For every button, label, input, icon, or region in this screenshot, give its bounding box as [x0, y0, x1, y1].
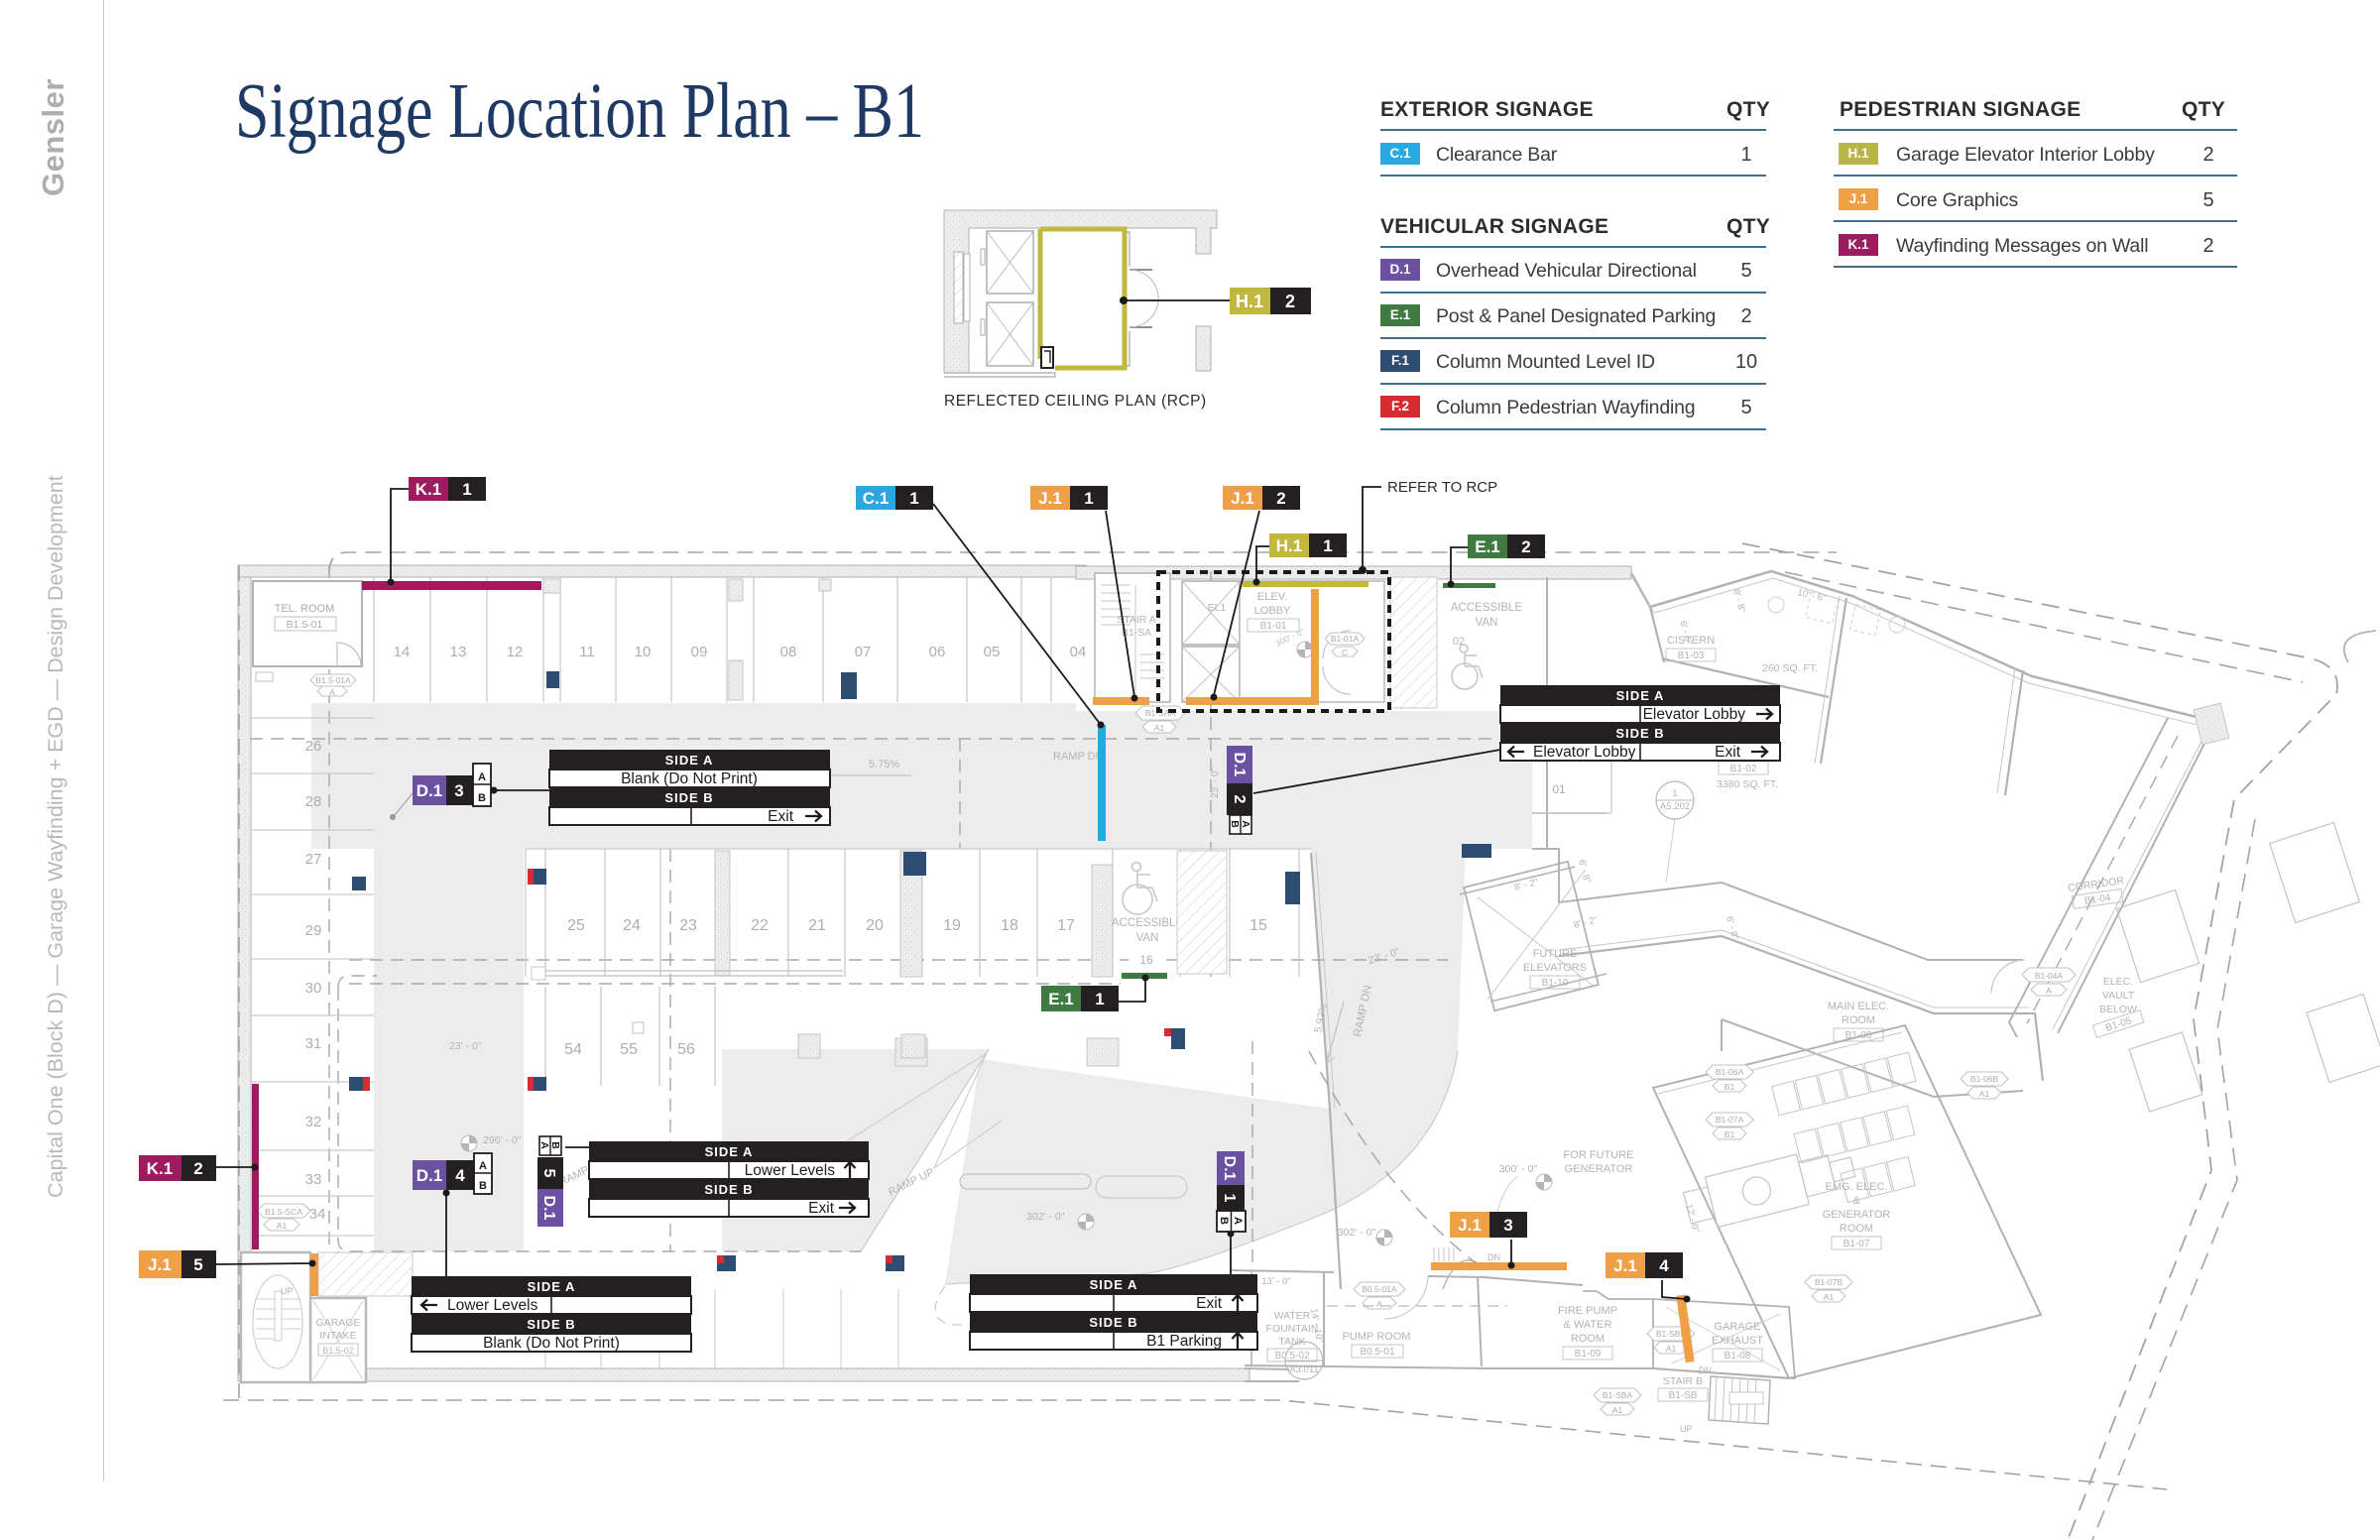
svg-text:A: A: [329, 687, 335, 697]
svg-text:RAMP DN: RAMP DN: [1053, 751, 1104, 763]
svg-text:INTAKE: INTAKE: [319, 1330, 356, 1342]
svg-text:4: 4: [1659, 1256, 1669, 1275]
svg-text:28: 28: [305, 793, 322, 810]
svg-text:B1.5-01: B1.5-01: [287, 619, 323, 631]
svg-text:20: 20: [866, 917, 884, 934]
svg-text:B1.5-01A: B1.5-01A: [315, 675, 351, 685]
svg-text:2: 2: [1285, 292, 1295, 311]
svg-text:A: A: [1232, 1217, 1244, 1225]
svg-text:B1-06A: B1-06A: [1716, 1067, 1744, 1077]
svg-text:LOBBY: LOBBY: [1254, 605, 1291, 617]
svg-text:1: 1: [1095, 990, 1104, 1008]
svg-text:B: B: [479, 1180, 487, 1192]
svg-text:K.1: K.1: [147, 1159, 173, 1178]
svg-text:B1-01: B1-01: [1260, 621, 1287, 632]
svg-text:REFER TO RCP: REFER TO RCP: [1387, 479, 1497, 496]
svg-text:23' - 0": 23' - 0": [1210, 768, 1221, 798]
svg-text:302' - 0": 302' - 0": [1026, 1211, 1065, 1223]
svg-text:26: 26: [305, 738, 322, 755]
svg-text:B1-04A: B1-04A: [2035, 971, 2064, 981]
svg-text:ACCESSIBLE: ACCESSIBLE: [1112, 917, 1184, 929]
svg-text:296' - 0": 296' - 0": [483, 1134, 522, 1146]
svg-text:CORRIDOR: CORRIDOR: [2067, 875, 2125, 894]
svg-text:FIRE PUMP: FIRE PUMP: [1558, 1305, 1617, 1317]
svg-text:B0.5-01: B0.5-01: [1360, 1347, 1394, 1358]
svg-text:13' - 0": 13' - 0": [1261, 1276, 1290, 1287]
svg-text:Blank (Do Not Print): Blank (Do Not Print): [621, 770, 758, 787]
svg-text:J.1: J.1: [1613, 1256, 1637, 1275]
svg-text:B1-06B: B1-06B: [1970, 1074, 1999, 1084]
svg-text:EL1: EL1: [1208, 602, 1227, 614]
svg-text:B1-04: B1-04: [2083, 892, 2111, 907]
svg-text:11: 11: [579, 644, 595, 660]
svg-text:A5.202: A5.202: [1660, 801, 1690, 812]
svg-text:SIDE A: SIDE A: [1616, 688, 1665, 703]
svg-text:6' - 8": 6' - 8": [1576, 859, 1593, 885]
svg-text:05: 05: [984, 644, 1001, 660]
svg-text:29: 29: [305, 922, 322, 939]
svg-text:GENERATOR: GENERATOR: [1823, 1209, 1891, 1221]
svg-text:13: 13: [450, 644, 467, 660]
svg-text:Exit: Exit: [1196, 1295, 1223, 1312]
svg-text:E.1: E.1: [1048, 990, 1074, 1008]
svg-text:GENERATOR: GENERATOR: [1565, 1163, 1633, 1175]
svg-text:B1-03: B1-03: [1678, 651, 1705, 661]
svg-text:A1: A1: [1824, 1292, 1835, 1302]
svg-text:B: B: [1229, 820, 1241, 828]
svg-text:B1-SBA: B1-SBA: [1603, 1390, 1633, 1400]
svg-text:ELEC.: ELEC.: [2103, 976, 2133, 988]
svg-text:SIDE B: SIDE B: [1615, 726, 1664, 741]
svg-text:15: 15: [1249, 917, 1267, 934]
svg-text:B0.5-02: B0.5-02: [1274, 1351, 1309, 1362]
svg-text:PUMP ROOM: PUMP ROOM: [1343, 1331, 1411, 1343]
svg-text:ACCESSIBLE: ACCESSIBLE: [1451, 602, 1523, 614]
svg-text:B1-02: B1-02: [1730, 764, 1757, 774]
svg-text:12: 12: [507, 644, 524, 660]
svg-text:ROOM: ROOM: [1840, 1223, 1873, 1235]
svg-text:Elevator Lobby: Elevator Lobby: [1533, 744, 1636, 761]
svg-text:DN: DN: [1699, 1365, 1712, 1375]
svg-text:B1.5-02: B1.5-02: [322, 1346, 354, 1356]
svg-text:SIDE B: SIDE B: [1089, 1315, 1137, 1330]
svg-text:C: C: [1342, 648, 1348, 657]
svg-text:B1-09: B1-09: [1575, 1349, 1602, 1360]
svg-text:56: 56: [677, 1041, 695, 1058]
svg-text:10: 10: [635, 644, 652, 660]
svg-text:B1-SB: B1-SB: [1669, 1390, 1698, 1401]
svg-text:J.1: J.1: [1458, 1216, 1482, 1235]
svg-text:3: 3: [1503, 1216, 1512, 1235]
svg-text:MAIN ELEC.: MAIN ELEC.: [1828, 1001, 1889, 1012]
svg-text:VAN: VAN: [1476, 617, 1498, 629]
svg-text:B: B: [1218, 1217, 1230, 1225]
svg-text:24: 24: [623, 917, 641, 934]
svg-text:B0.5-01A: B0.5-01A: [1362, 1284, 1397, 1294]
svg-text:55: 55: [620, 1041, 638, 1058]
svg-text:GARAGE: GARAGE: [316, 1317, 361, 1329]
svg-text:A: A: [538, 1141, 550, 1149]
svg-text:8' - 2": 8' - 2": [1513, 877, 1539, 893]
svg-text:TEL. ROOM: TEL. ROOM: [275, 603, 335, 615]
svg-text:D.1: D.1: [416, 1166, 442, 1185]
svg-text:B1: B1: [1725, 1129, 1735, 1139]
svg-text:2: 2: [1276, 489, 1285, 508]
svg-text:A1: A1: [1666, 1344, 1677, 1354]
svg-text:FOR FUTURE: FOR FUTURE: [1564, 1149, 1634, 1161]
svg-text:17: 17: [1057, 917, 1075, 934]
svg-text:UP: UP: [281, 1286, 294, 1296]
svg-text:Elevator Lobby: Elevator Lobby: [1643, 706, 1746, 723]
svg-text:Lower Levels: Lower Levels: [745, 1162, 836, 1179]
svg-text:27: 27: [305, 851, 322, 868]
svg-text:EXHAUST: EXHAUST: [1712, 1335, 1763, 1347]
svg-text:B1-08: B1-08: [1725, 1351, 1751, 1362]
svg-text:25: 25: [567, 917, 585, 934]
svg-text:B1-01A: B1-01A: [1331, 634, 1360, 644]
svg-text:10' - 6": 10' - 6": [1796, 587, 1827, 604]
svg-text:06: 06: [929, 644, 946, 660]
svg-text:B1.5-SCA: B1.5-SCA: [265, 1207, 302, 1217]
svg-text:3: 3: [454, 781, 463, 800]
svg-text:Blank (Do Not Print): Blank (Do Not Print): [483, 1335, 620, 1352]
svg-text:A: A: [2046, 986, 2052, 996]
svg-text:SIDE B: SIDE B: [664, 790, 713, 805]
svg-text:3380 SQ. FT.: 3380 SQ. FT.: [1717, 778, 1778, 790]
svg-text:ROOM: ROOM: [1842, 1014, 1875, 1026]
svg-text:2: 2: [193, 1159, 202, 1178]
svg-text:VAN: VAN: [1136, 932, 1159, 944]
svg-text:14: 14: [394, 644, 411, 660]
svg-text:09: 09: [691, 644, 708, 660]
svg-text:ELEVATORS: ELEVATORS: [1523, 962, 1587, 974]
svg-text:A: A: [479, 1160, 487, 1172]
svg-text:19: 19: [943, 917, 961, 934]
svg-text:GARAGE: GARAGE: [1714, 1321, 1760, 1333]
svg-text:SIDE A: SIDE A: [665, 753, 714, 768]
svg-text:SIDE B: SIDE B: [704, 1182, 753, 1197]
svg-text:Exit: Exit: [768, 808, 794, 825]
svg-text:2: 2: [1231, 795, 1248, 804]
svg-text:B1-05: B1-05: [2104, 1015, 2133, 1034]
svg-text:02: 02: [1453, 636, 1465, 648]
svg-text:H.1: H.1: [1236, 292, 1263, 311]
svg-text:FOUNTAIN: FOUNTAIN: [1266, 1323, 1319, 1335]
svg-text:A3.011: A3.011: [1289, 1364, 1318, 1375]
svg-text:B1-07: B1-07: [1844, 1239, 1870, 1249]
svg-text:C.1: C.1: [863, 489, 889, 508]
svg-text:22: 22: [751, 917, 769, 934]
svg-text:2: 2: [1521, 537, 1530, 556]
svg-text:8' - 8": 8' - 8": [1730, 588, 1747, 614]
svg-text:&: &: [1852, 1195, 1860, 1207]
svg-text:ELEV.: ELEV.: [1257, 591, 1287, 603]
svg-text:B: B: [478, 792, 486, 804]
svg-text:B1-07B: B1-07B: [1815, 1277, 1844, 1287]
svg-text:A1: A1: [1612, 1405, 1623, 1415]
svg-text:UP: UP: [1680, 1424, 1693, 1434]
svg-text:18: 18: [1001, 917, 1018, 934]
svg-text:31: 31: [305, 1035, 322, 1052]
svg-text:08: 08: [780, 644, 797, 660]
svg-text:VAULT: VAULT: [2102, 990, 2135, 1002]
svg-text:Lower Levels: Lower Levels: [447, 1297, 538, 1314]
svg-text:B1-10: B1-10: [1542, 978, 1569, 989]
svg-text:21: 21: [808, 917, 826, 934]
svg-text:1: 1: [1084, 489, 1093, 508]
svg-text:WATER: WATER: [1274, 1310, 1311, 1322]
svg-text:07: 07: [855, 644, 872, 660]
svg-text:01: 01: [1552, 782, 1566, 796]
svg-text:H.1: H.1: [1276, 536, 1302, 555]
svg-text:D.1: D.1: [540, 1196, 557, 1221]
svg-text:1: 1: [1672, 788, 1677, 799]
svg-text:1: 1: [909, 489, 918, 508]
svg-text:K.1: K.1: [416, 480, 441, 499]
svg-text:E.1: E.1: [1475, 537, 1500, 556]
svg-text:Exit: Exit: [808, 1200, 835, 1217]
svg-text:300' - 0": 300' - 0": [1499, 1163, 1538, 1175]
svg-text:54: 54: [564, 1041, 582, 1058]
svg-text:SIDE A: SIDE A: [705, 1144, 754, 1159]
svg-text:16: 16: [1139, 953, 1153, 967]
svg-text:ROOM: ROOM: [1571, 1333, 1605, 1345]
svg-text:SIDE A: SIDE A: [1090, 1277, 1138, 1292]
svg-text:BELOW: BELOW: [2099, 1004, 2137, 1015]
svg-text:A1: A1: [1979, 1089, 1990, 1099]
svg-text:B1 Parking: B1 Parking: [1146, 1333, 1222, 1350]
svg-text:J.1: J.1: [1231, 489, 1254, 508]
svg-text:SIDE A: SIDE A: [528, 1279, 576, 1294]
svg-text:D.1: D.1: [1231, 753, 1248, 777]
svg-text:32: 32: [305, 1114, 322, 1130]
svg-text:A1: A1: [277, 1221, 288, 1231]
svg-text:1: 1: [1323, 536, 1332, 555]
svg-text:B: B: [549, 1141, 561, 1149]
svg-text:FUTURE: FUTURE: [1533, 948, 1578, 960]
svg-text:D.1: D.1: [1221, 1156, 1238, 1181]
svg-text:5: 5: [540, 1169, 557, 1178]
svg-text:8' - 2": 8' - 2": [1573, 914, 1599, 931]
svg-text:04: 04: [1070, 644, 1087, 660]
svg-text:34: 34: [309, 1206, 326, 1223]
svg-text:STAIR B: STAIR B: [1663, 1375, 1703, 1387]
svg-text:260 SQ. FT.: 260 SQ. FT.: [1762, 662, 1818, 674]
svg-text:5: 5: [193, 1255, 202, 1274]
svg-text:1: 1: [1221, 1194, 1238, 1203]
svg-text:J.1: J.1: [1038, 489, 1062, 508]
svg-text:REFLECTED CEILING PLAN (RCP): REFLECTED CEILING PLAN (RCP): [944, 393, 1207, 410]
svg-text:5.75%: 5.75%: [869, 759, 899, 770]
svg-text:J.1: J.1: [148, 1255, 172, 1274]
svg-text:23' - 0": 23' - 0": [449, 1040, 482, 1052]
svg-text:4: 4: [455, 1166, 465, 1185]
svg-text:B1: B1: [1725, 1082, 1735, 1092]
svg-text:DN: DN: [1487, 1252, 1500, 1262]
svg-text:1: 1: [462, 480, 471, 499]
svg-text:A1: A1: [1154, 723, 1165, 733]
svg-text:23: 23: [679, 917, 697, 934]
svg-text:SIDE B: SIDE B: [527, 1317, 575, 1332]
svg-text:302' - 0": 302' - 0": [1338, 1227, 1376, 1239]
svg-text:A: A: [478, 771, 486, 783]
svg-text:& WATER: & WATER: [1564, 1319, 1612, 1331]
svg-text:A: A: [1376, 1299, 1382, 1309]
svg-text:D.1: D.1: [416, 781, 442, 800]
svg-text:Exit: Exit: [1715, 744, 1741, 761]
svg-text:30: 30: [305, 980, 322, 997]
svg-text:33: 33: [305, 1171, 322, 1188]
svg-text:12' - 0": 12' - 0": [1683, 1203, 1701, 1234]
svg-text:B1-07A: B1-07A: [1716, 1115, 1744, 1125]
